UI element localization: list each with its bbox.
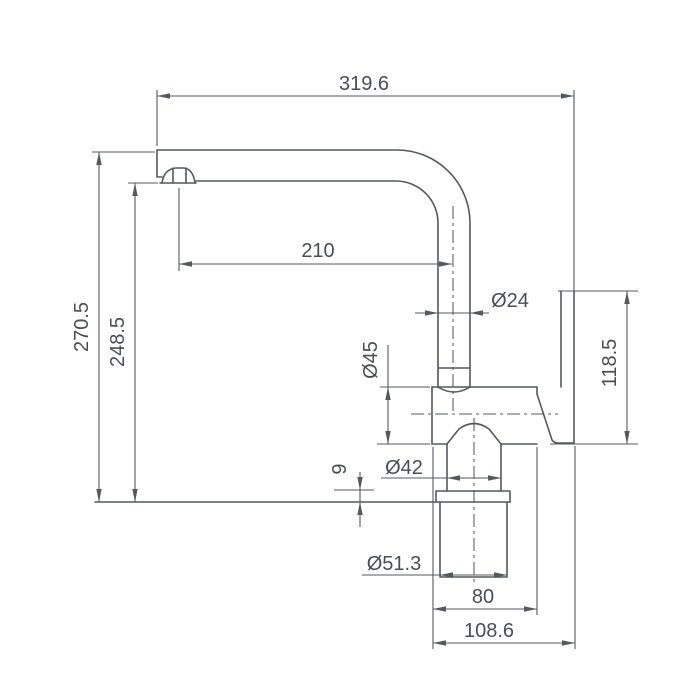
arrowhead	[562, 640, 575, 645]
dim-spout-projection: 210	[179, 188, 452, 271]
arrowhead	[157, 93, 170, 98]
arrowhead	[433, 640, 446, 645]
arrowhead	[385, 431, 390, 444]
spout-inner-contour	[196, 181, 438, 387]
dim-label-neck-diameter: Ø42	[385, 457, 423, 479]
arrowhead	[425, 310, 438, 315]
dim-body-length-lines	[433, 447, 537, 649]
arrowhead	[561, 93, 574, 98]
aerator-dome	[162, 168, 195, 183]
body-end-cap	[537, 387, 574, 443]
dim-label-flange-thickness: 9	[329, 463, 351, 474]
dim-outlet-height-lines	[128, 183, 158, 502]
arrowhead	[96, 152, 101, 165]
dim-label-overall-depth: 108.6	[464, 620, 514, 642]
arrowhead	[439, 261, 452, 266]
arrowhead	[357, 477, 362, 490]
dim-overall-depth-lines	[433, 446, 575, 649]
arrowhead	[433, 606, 446, 611]
base-flange	[436, 491, 510, 502]
dim-flange-thickness-lines	[334, 472, 374, 527]
dim-base-diameter: Ø51.3	[362, 553, 507, 578]
dim-body-length: 80	[433, 447, 537, 649]
dim-label-spout-projection: 210	[301, 240, 334, 262]
arrowhead	[357, 502, 362, 515]
dim-handle-height-lines	[550, 291, 638, 444]
arrowhead	[447, 475, 460, 480]
dim-spout-reach: 319.6	[157, 73, 574, 291]
dim-overall-depth: 108.6	[433, 446, 575, 649]
dim-label-spout-reach: 319.6	[339, 73, 389, 95]
faucet-dimension-drawing: 319.6 270.5 248.5 210 Ø24 Ø45	[0, 0, 700, 700]
dim-body-diameter-lines	[377, 345, 430, 444]
arrowhead	[132, 183, 137, 196]
dim-label-base-diameter: Ø51.3	[367, 553, 421, 575]
spout-end-face	[157, 150, 162, 177]
arrowhead	[488, 475, 501, 480]
dim-label-handle-height: 118.5	[599, 339, 621, 388]
arrowhead	[132, 489, 137, 502]
arrowhead	[179, 261, 192, 266]
dim-neck-diameter: Ø42	[381, 457, 501, 481]
dim-label-body-length: 80	[472, 586, 494, 608]
dim-flange-thickness: 9	[329, 463, 374, 527]
arrowhead	[470, 310, 483, 315]
dim-label-tube-diameter: Ø24	[491, 290, 529, 312]
drawing-canvas: 319.6 270.5 248.5 210 Ø24 Ø45	[0, 0, 700, 700]
arrowhead	[96, 489, 101, 502]
arrowhead	[524, 606, 537, 611]
dim-body-diameter: Ø45	[360, 341, 430, 444]
arrowhead	[624, 431, 629, 444]
faucet-outline	[95, 150, 574, 577]
dim-handle-height: 118.5	[550, 291, 638, 444]
dim-outlet-height: 248.5	[107, 183, 158, 502]
dim-label-overall-height: 270.5	[71, 302, 93, 352]
arrowhead	[385, 387, 390, 400]
spout-outer-contour	[157, 150, 470, 387]
arrowhead	[624, 291, 629, 304]
dim-label-body-diameter: Ø45	[360, 341, 382, 379]
aerator-facets	[173, 168, 186, 183]
dim-tube-diameter: Ø24	[415, 290, 529, 316]
dim-label-outlet-height: 248.5	[107, 317, 129, 367]
dim-spout-reach-lines	[157, 90, 574, 291]
